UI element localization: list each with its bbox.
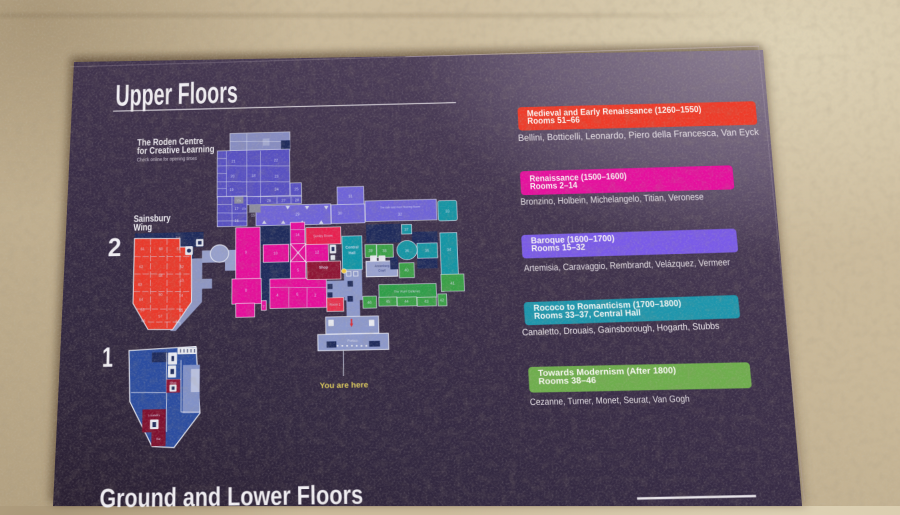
svg-text:28: 28 xyxy=(295,198,299,202)
svg-text:41: 41 xyxy=(450,281,454,286)
svg-text:23: 23 xyxy=(274,174,278,178)
svg-text:Hall: Hall xyxy=(348,251,355,256)
svg-text:15a: 15a xyxy=(242,207,247,210)
svg-text:51A: 51A xyxy=(176,236,181,239)
svg-text:Court: Court xyxy=(378,268,386,273)
svg-text:31: 31 xyxy=(348,194,352,198)
svg-text:54: 54 xyxy=(179,293,183,298)
svg-text:50: 50 xyxy=(158,292,162,297)
svg-text:52: 52 xyxy=(180,265,184,270)
svg-text:6: 6 xyxy=(296,292,298,297)
svg-text:7: 7 xyxy=(263,305,265,310)
svg-text:45: 45 xyxy=(386,299,390,304)
svg-text:Shop: Shop xyxy=(170,380,177,385)
svg-text:53: 53 xyxy=(180,278,184,283)
svg-text:61: 61 xyxy=(141,247,145,252)
svg-text:19: 19 xyxy=(229,188,233,192)
svg-text:55: 55 xyxy=(179,308,183,313)
svg-text:Central: Central xyxy=(345,245,358,250)
svg-text:37: 37 xyxy=(404,227,408,232)
svg-text:17a: 17a xyxy=(237,199,242,202)
svg-text:18: 18 xyxy=(251,174,255,178)
svg-text:12: 12 xyxy=(315,250,319,255)
svg-text:10: 10 xyxy=(273,251,277,256)
svg-text:43: 43 xyxy=(424,299,428,304)
svg-text:36: 36 xyxy=(405,249,409,254)
svg-text:9: 9 xyxy=(245,250,247,255)
svg-text:Bar: Bar xyxy=(156,436,161,441)
svg-text:57: 57 xyxy=(158,314,162,319)
svg-text:42: 42 xyxy=(440,298,444,303)
svg-text:26: 26 xyxy=(267,198,271,202)
svg-text:Sunley Room: Sunley Room xyxy=(313,233,333,238)
svg-text:Locatelli's: Locatelli's xyxy=(148,413,161,418)
svg-text:44: 44 xyxy=(404,299,408,304)
svg-text:58: 58 xyxy=(159,273,163,278)
svg-text:29: 29 xyxy=(295,212,299,217)
svg-text:14: 14 xyxy=(295,233,299,238)
svg-text:21: 21 xyxy=(231,159,235,163)
svg-text:8: 8 xyxy=(245,288,247,293)
svg-text:38: 38 xyxy=(382,249,386,254)
svg-text:35: 35 xyxy=(425,249,429,254)
svg-text:56: 56 xyxy=(175,320,179,325)
svg-text:5: 5 xyxy=(297,268,299,273)
svg-text:62: 62 xyxy=(139,265,143,270)
svg-text:40: 40 xyxy=(404,268,408,273)
svg-text:32: 32 xyxy=(398,212,402,217)
svg-text:39: 39 xyxy=(368,249,372,254)
svg-text:65: 65 xyxy=(140,308,144,313)
svg-text:51: 51 xyxy=(177,247,181,252)
svg-text:30: 30 xyxy=(338,211,342,216)
svg-text:64: 64 xyxy=(139,297,143,302)
svg-text:16: 16 xyxy=(234,219,238,224)
svg-text:20: 20 xyxy=(230,174,234,178)
svg-text:24: 24 xyxy=(274,187,278,191)
svg-text:4: 4 xyxy=(276,293,278,298)
svg-text:Room 1: Room 1 xyxy=(330,302,341,307)
svg-text:66: 66 xyxy=(141,319,145,324)
svg-text:60: 60 xyxy=(159,247,163,252)
svg-text:25: 25 xyxy=(294,187,298,191)
svg-text:17: 17 xyxy=(234,207,238,211)
svg-text:2: 2 xyxy=(314,293,316,298)
svg-text:34: 34 xyxy=(447,248,451,253)
svg-text:33: 33 xyxy=(445,209,449,214)
svg-text:15: 15 xyxy=(251,213,255,218)
svg-text:46: 46 xyxy=(367,300,371,305)
svg-text:Shop: Shop xyxy=(319,265,328,270)
svg-text:Portico: Portico xyxy=(347,338,358,343)
svg-text:11: 11 xyxy=(296,250,300,255)
svg-text:27: 27 xyxy=(281,198,285,202)
svg-text:The Wohl Galleries: The Wohl Galleries xyxy=(394,289,421,294)
svg-text:63: 63 xyxy=(138,282,142,287)
svg-text:22: 22 xyxy=(274,158,278,162)
